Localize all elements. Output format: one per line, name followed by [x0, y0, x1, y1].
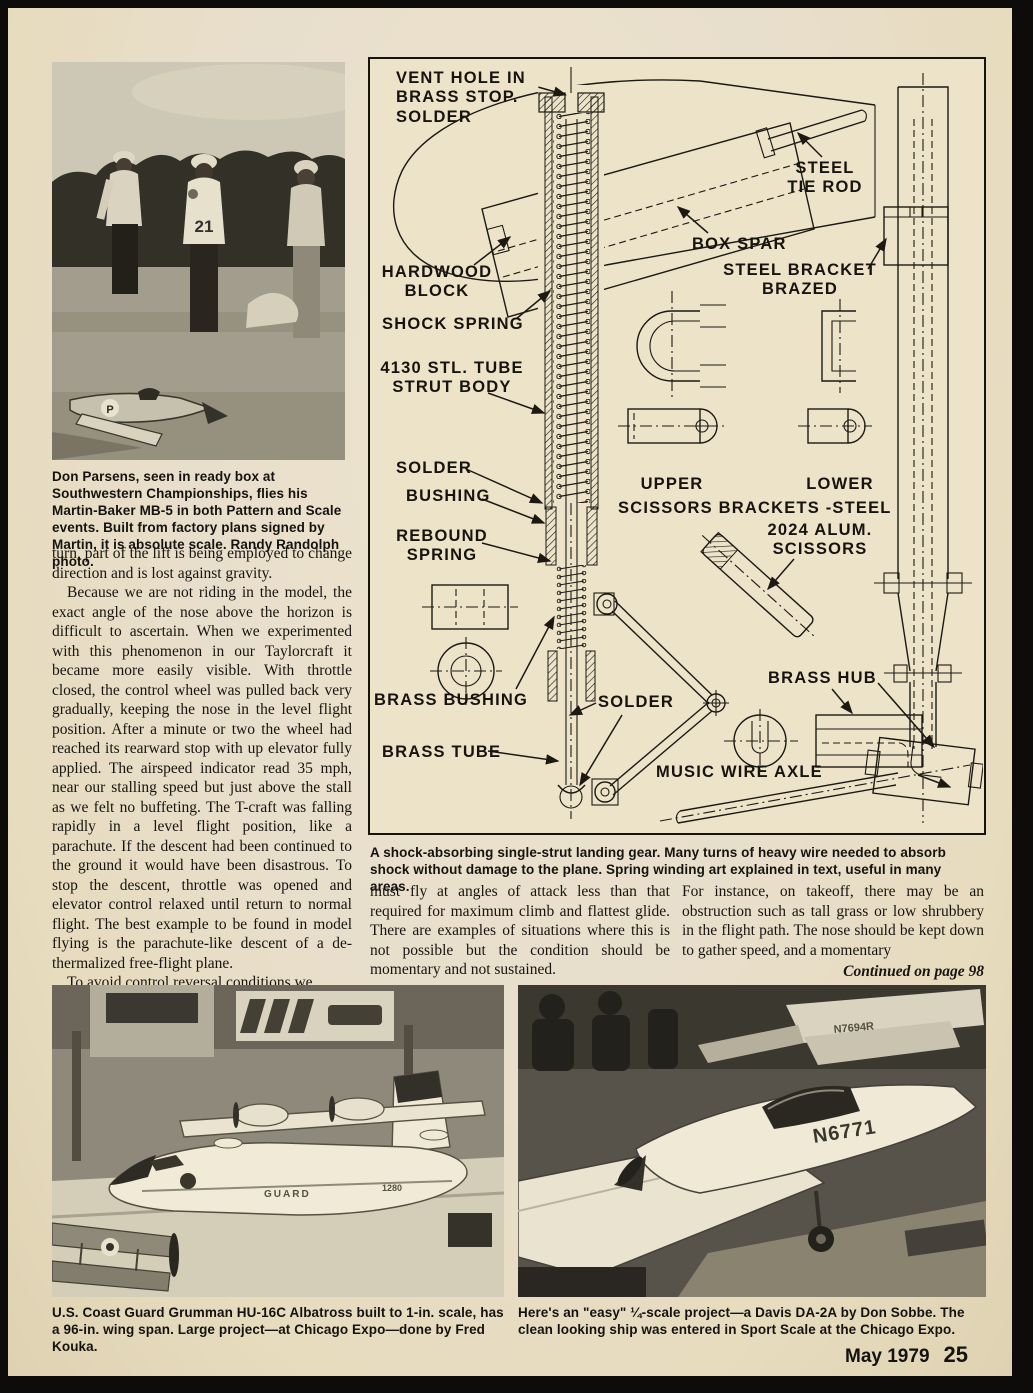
diagram-label-scissors-brackets: SCISSORS BRACKETS -STEEL — [618, 499, 892, 518]
page-number: 25 — [944, 1342, 968, 1367]
paragraph: Because we are not riding in the model, … — [52, 583, 352, 973]
photo-davis-art: N7694R N6771 — [518, 985, 986, 1297]
diagram-label-brass-bushing: BRASS BUSHING — [374, 691, 528, 710]
brass-bushing-views — [422, 585, 518, 705]
assembled-strut-drawing — [863, 73, 983, 823]
diagram-label-strut-body: 4130 STL. TUBE STRUT BODY — [372, 359, 532, 398]
diagram-label-steel-bracket: STEEL BRACKET BRAZED — [710, 261, 890, 300]
photo-davis-da2a: N7694R N6771 — [518, 985, 986, 1297]
paragraph: turn, part of the lift is being employed… — [52, 544, 352, 583]
diagram-label-box-spar: BOX SPAR — [692, 235, 787, 254]
hull-number: 1280 — [382, 1183, 402, 1193]
diagram-label-bushing: BUSHING — [406, 487, 491, 506]
scissors-brackets-drawing — [618, 291, 872, 443]
diagram-label-shock-spring: SHOCK SPRING — [382, 315, 524, 334]
diagram-label-upper: UPPER — [632, 475, 712, 494]
page-footer: May 197925 — [845, 1342, 968, 1368]
article-middle-column: must fly at angles of attack less than t… — [370, 882, 670, 980]
caption-davis: Here's an "easy" ¼-scale project—a Davis… — [518, 1304, 986, 1338]
diagram-label-vent-hole: VENT HOLE IN BRASS STOP. SOLDER — [396, 69, 526, 127]
paragraph: For instance, on takeoff, there may be a… — [682, 882, 984, 960]
photo-albatross: GUARD 1280 — [52, 985, 504, 1297]
landing-gear-drawing — [370, 59, 983, 832]
paper-background: 21 — [8, 8, 1012, 1376]
wing-letter: P — [106, 404, 113, 416]
paragraph: must fly at angles of attack less than t… — [370, 882, 670, 980]
landing-gear-diagram: VENT HOLE IN BRASS STOP. SOLDER STEEL TI… — [368, 57, 986, 835]
continued-on-page: Continued on page 98 — [682, 962, 984, 982]
diagram-label-hardwood-block: HARDWOOD BLOCK — [374, 263, 500, 302]
tie-rod-drawing — [756, 110, 866, 158]
diagram-label-lower: LOWER — [798, 475, 882, 494]
photo-albatross-art: GUARD 1280 — [52, 985, 504, 1297]
diagram-label-solder-upper: SOLDER — [396, 459, 472, 478]
steel-bracket-drawing — [884, 207, 948, 265]
diagram-label-alum-scissors: 2024 ALUM. SCISSORS — [750, 521, 890, 560]
issue-date: May 1979 — [845, 1346, 930, 1367]
shock-spring-drawing — [553, 113, 590, 503]
diagram-label-steel-tie-rod: STEEL TIE ROD — [770, 159, 880, 198]
article-left-column: turn, part of the lift is being employed… — [52, 544, 352, 993]
diagram-label-brass-tube: BRASS TUBE — [382, 743, 501, 762]
hull-text: GUARD — [264, 1189, 311, 1200]
diagram-label-music-wire-axle: MUSIC WIRE AXLE — [656, 763, 823, 782]
diagram-label-rebound-spring: REBOUND SPRING — [384, 527, 500, 566]
shirt-number: 21 — [195, 217, 214, 236]
photo-ready-box: 21 — [52, 62, 345, 460]
diagram-label-brass-hub: BRASS HUB — [768, 669, 877, 688]
article-right-column: For instance, on takeoff, there may be a… — [682, 882, 984, 982]
caption-albatross: U.S. Coast Guard Grumman HU-16C Albatros… — [52, 1304, 510, 1355]
photo-ready-box-art: 21 — [52, 62, 345, 460]
magazine-page: 21 — [0, 0, 1033, 1393]
diagram-label-solder-lower: SOLDER — [598, 693, 674, 712]
